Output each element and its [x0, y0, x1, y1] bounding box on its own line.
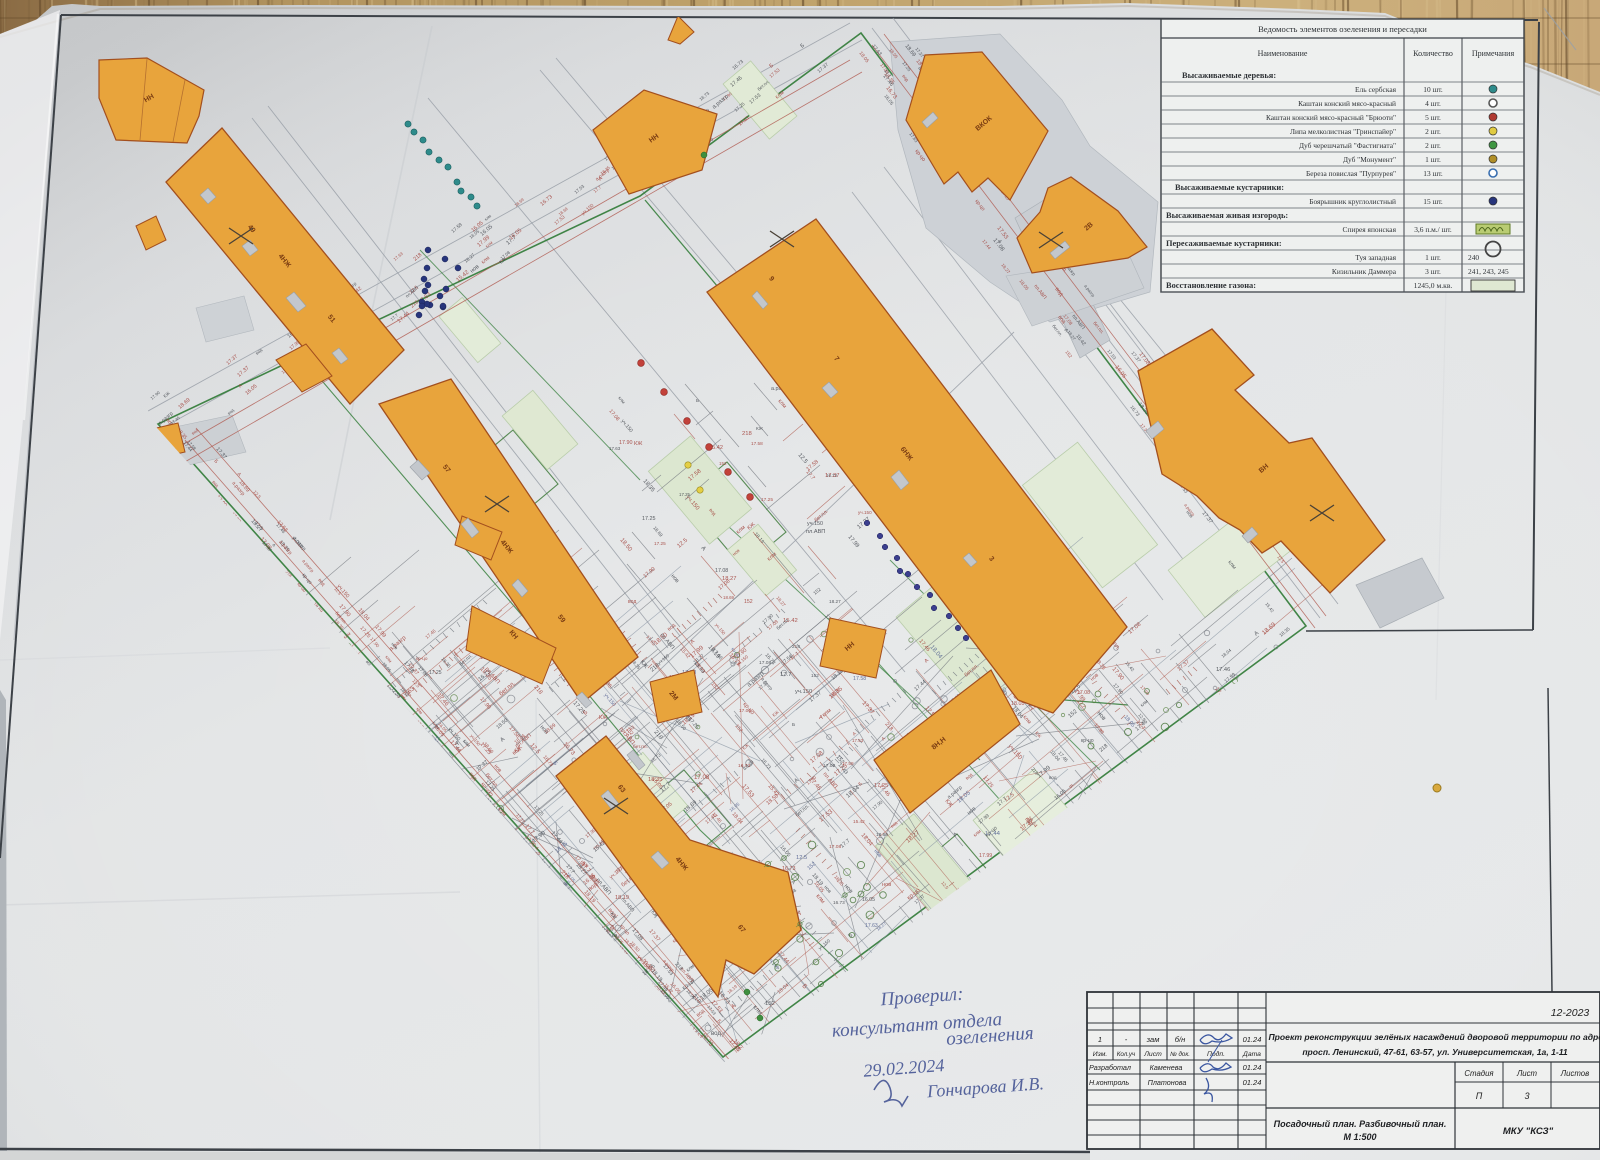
svg-text:А: А — [819, 715, 823, 721]
svg-text:Стадия: Стадия — [1464, 1069, 1494, 1078]
svg-text:2 шт.: 2 шт. — [1425, 141, 1441, 150]
svg-text:17.44: 17.44 — [985, 831, 1001, 837]
svg-text:б/н: б/н — [1175, 1035, 1185, 1044]
svg-text:12.5: 12.5 — [796, 855, 807, 861]
svg-text:240: 240 — [1468, 253, 1479, 262]
svg-text:Наименование: Наименование — [1258, 49, 1308, 58]
svg-text:152: 152 — [811, 673, 819, 678]
svg-text:Ведомость элементов озеленения: Ведомость элементов озеленения и пересад… — [1258, 24, 1427, 34]
svg-text:Каштан конский мясо-красный: Каштан конский мясо-красный — [1298, 99, 1396, 108]
svg-text:Б: Б — [792, 722, 795, 728]
svg-text:01.24: 01.24 — [1243, 1035, 1262, 1044]
svg-text:5 шт.: 5 шт. — [1425, 113, 1441, 122]
svg-text:Каменева: Каменева — [1150, 1063, 1183, 1072]
svg-text:кр-цо: кр-цо — [416, 656, 428, 661]
svg-text:17.08: 17.08 — [759, 660, 772, 666]
svg-text:МКУ "КСЗ": МКУ "КСЗ" — [1503, 1126, 1554, 1137]
svg-text:1: 1 — [1098, 1035, 1102, 1044]
svg-text:КЖ: КЖ — [599, 715, 608, 721]
svg-text:1 шт.: 1 шт. — [1425, 253, 1441, 262]
svg-text:вод: вод — [711, 1030, 721, 1037]
svg-text:КЖ: КЖ — [634, 441, 643, 447]
svg-text:18.27: 18.27 — [829, 599, 841, 604]
svg-text:зам: зам — [1146, 1035, 1160, 1044]
svg-text:16.05: 16.05 — [862, 897, 875, 903]
svg-text:17.08: 17.08 — [823, 763, 836, 769]
svg-text:4 шт.: 4 шт. — [1425, 99, 1441, 108]
svg-text:17.90: 17.90 — [619, 440, 633, 446]
svg-text:2 шт.: 2 шт. — [1425, 127, 1441, 136]
svg-text:17.58: 17.58 — [751, 441, 763, 446]
svg-text:Платонова: Платонова — [1148, 1078, 1187, 1087]
svg-text:Высаживаемая живая изгородь:: Высаживаемая живая изгородь: — [1166, 211, 1288, 220]
svg-text:15.42: 15.42 — [853, 819, 865, 824]
svg-text:Спирея японская: Спирея японская — [1342, 225, 1396, 234]
svg-text:Липа мелколистная "Гринспайер": Липа мелколистная "Гринспайер" — [1290, 127, 1396, 136]
svg-text:241, 243, 245: 241, 243, 245 — [1468, 267, 1509, 276]
svg-text:Изм.: Изм. — [1093, 1051, 1108, 1058]
svg-text:17.58: 17.58 — [842, 761, 854, 766]
svg-text:Листов: Листов — [1560, 1069, 1589, 1078]
svg-text:17.58: 17.58 — [853, 676, 866, 682]
svg-text:просп. Ленинский, 47-61, 63-57: просп. Ленинский, 47-61, 63-57, ул. Унив… — [1302, 1047, 1568, 1057]
svg-text:нов: нов — [882, 882, 891, 888]
svg-text:01.24: 01.24 — [1243, 1078, 1262, 1087]
svg-text:17.63: 17.63 — [865, 923, 878, 929]
svg-text:17.25: 17.25 — [654, 541, 666, 546]
svg-text:15 шт.: 15 шт. — [1423, 197, 1443, 206]
svg-text:Береза повислая "Пурпурея": Береза повислая "Пурпурея" — [1306, 169, 1396, 178]
svg-text:Высаживаемые кустарники:: Высаживаемые кустарники: — [1175, 183, 1284, 192]
svg-text:Лист: Лист — [1516, 1069, 1538, 1078]
svg-text:вод: вод — [628, 599, 636, 605]
svg-text:17.53: 17.53 — [852, 738, 864, 743]
svg-text:13 шт.: 13 шт. — [1423, 169, 1443, 178]
svg-text:1 шт.: 1 шт. — [1425, 155, 1441, 164]
svg-text:уч.150: уч.150 — [807, 521, 823, 527]
svg-text:152: 152 — [765, 1001, 775, 1007]
svg-text:17.46: 17.46 — [1216, 667, 1230, 673]
svg-text:3,6 п.м./ шт.: 3,6 п.м./ шт. — [1414, 225, 1452, 234]
svg-text:П: П — [1476, 1091, 1483, 1101]
svg-text:№ док.: № док. — [1170, 1051, 1190, 1058]
svg-text:Н.контроль: Н.контроль — [1089, 1078, 1129, 1087]
svg-text:Подп.: Подп. — [1207, 1050, 1225, 1058]
svg-text:М 1:500: М 1:500 — [1343, 1132, 1376, 1142]
svg-text:уч.150: уч.150 — [858, 510, 872, 515]
svg-text:пл.АВП: пл.АВП — [806, 529, 825, 535]
svg-text:16.73: 16.73 — [738, 763, 751, 769]
svg-text:Кол.уч: Кол.уч — [1117, 1051, 1136, 1058]
svg-text:17.25: 17.25 — [642, 516, 656, 522]
svg-text:18.35: 18.35 — [648, 777, 663, 783]
svg-text:01.24: 01.24 — [1243, 1063, 1262, 1072]
svg-text:17.99: 17.99 — [979, 853, 992, 859]
svg-text:17.25: 17.25 — [429, 670, 442, 676]
svg-text:17.08: 17.08 — [694, 774, 710, 781]
svg-text:3: 3 — [1524, 1091, 1529, 1101]
svg-text:Туя западная: Туя западная — [1355, 253, 1396, 262]
svg-text:3 шт.: 3 шт. — [1425, 267, 1441, 276]
svg-text:10 шт.: 10 шт. — [1423, 85, 1443, 94]
svg-text:17.37: 17.37 — [825, 473, 840, 479]
svg-text:Кизильник Даммера: Кизильник Даммера — [1332, 267, 1397, 276]
svg-text:17.25: 17.25 — [761, 497, 773, 503]
svg-text:152: 152 — [744, 599, 753, 605]
svg-text:вод: вод — [1049, 775, 1057, 780]
svg-text:Лист: Лист — [1143, 1051, 1162, 1058]
svg-text:18.69: 18.69 — [876, 832, 888, 838]
svg-text:Проект реконструкции зелёных н: Проект реконструкции зелёных насаждений … — [1269, 1032, 1600, 1042]
svg-text:Посадочный план. Разбивочный п: Посадочный план. Разбивочный план. — [1274, 1119, 1447, 1129]
svg-text:Боярышник круглолистный: Боярышник круглолистный — [1309, 197, 1396, 206]
svg-text:17.63: 17.63 — [609, 446, 621, 451]
svg-text:бет.пл.: бет.пл. — [633, 744, 648, 750]
svg-text:Дуб черешчатый "Фастигиата": Дуб черешчатый "Фастигиата" — [1299, 141, 1396, 150]
svg-text:16.73: 16.73 — [833, 900, 845, 905]
svg-text:Ель сербская: Ель сербская — [1355, 85, 1397, 94]
svg-text:152: 152 — [719, 461, 727, 466]
svg-text:17.08: 17.08 — [715, 568, 728, 574]
svg-text:Количество: Количество — [1413, 49, 1453, 58]
svg-text:Разработал: Разработал — [1089, 1063, 1131, 1072]
svg-text:Восстановление газона:: Восстановление газона: — [1166, 281, 1256, 290]
svg-text:12-2023: 12-2023 — [1551, 1007, 1590, 1019]
svg-text:Пересаживаемые кустарники:: Пересаживаемые кустарники: — [1166, 239, 1282, 248]
svg-text:17.08: 17.08 — [739, 708, 751, 714]
svg-text:18.69: 18.69 — [723, 595, 735, 600]
svg-text:Дата: Дата — [1242, 1051, 1261, 1058]
svg-text:17.7: 17.7 — [780, 672, 791, 678]
svg-text:Примечания: Примечания — [1472, 49, 1515, 58]
svg-text:Высаживаемые деревья:: Высаживаемые деревья: — [1182, 71, 1276, 80]
svg-text:Каштан конский мясо-красный "Б: Каштан конский мясо-красный "Брюоти" — [1266, 113, 1396, 122]
svg-text:218: 218 — [792, 644, 800, 650]
svg-text:1245,0 м.кв.: 1245,0 м.кв. — [1414, 281, 1453, 290]
svg-text:218: 218 — [742, 431, 753, 437]
svg-text:Дуб "Монумент": Дуб "Монумент" — [1343, 155, 1396, 164]
